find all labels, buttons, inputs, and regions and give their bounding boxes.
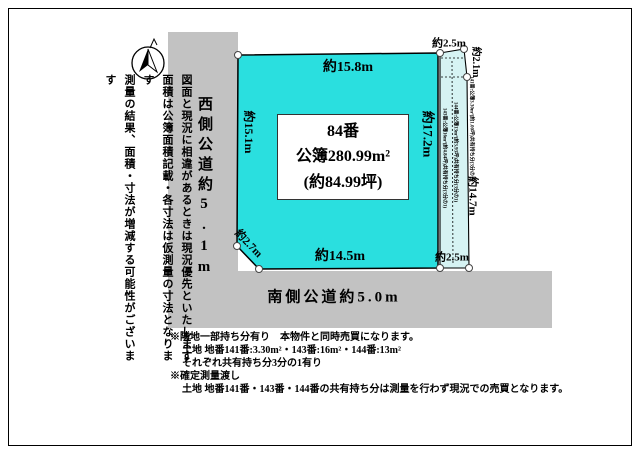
dim-bottom: 約14.5m xyxy=(315,250,365,264)
disclaimer-column-2: 面積は公簿面積記載・各寸法は仮測量の寸法となります xyxy=(138,74,176,370)
strip-dim-right: 約14.7m xyxy=(467,176,478,215)
strip-dim-top: 約2.5m xyxy=(432,39,466,50)
south-road-label: 南側公道約5.0m xyxy=(267,286,400,307)
notes-line-4: ※確定測量渡し xyxy=(170,370,568,383)
vertex-marker xyxy=(437,50,444,57)
lot-info-box: 84番 公簿280.99m² (約84.99坪) xyxy=(277,114,409,200)
parcel-143-label: 143番:公簿16m²(約4.84坪)共有持ち分(3分の1) xyxy=(442,108,449,208)
strip-dim-diagonal: 約2.1m xyxy=(470,47,480,78)
strip-dim-bottom: 約2.5m xyxy=(435,253,469,264)
dim-left: 約15.1m xyxy=(243,111,255,154)
notes-line-2: 土地 地番141番:3.30m²・143番:16m²・144番:13m² xyxy=(170,344,568,357)
vertex-marker xyxy=(466,265,473,272)
west-road-label: 西側公道約5.1m xyxy=(194,96,215,306)
vertex-marker xyxy=(235,52,242,59)
lot-area-registered: 公簿280.99m² xyxy=(296,144,390,170)
disclaimer-column-3: 測量の結果、面積・寸法が増減する可能性がございます xyxy=(100,74,138,370)
vertex-marker xyxy=(256,266,263,273)
notes-line-3: それぞれ共有持ち分3分の1有り xyxy=(170,357,568,370)
notes-line-5: 土地 地番141番・143番・144番の共有持ち分は測量を行わず現況での売買とな… xyxy=(170,383,568,396)
lot-area-tsubo: (約84.99坪) xyxy=(304,170,383,196)
disclaimer-column-1: 図面と現況に相違があるときは現況優先といたします xyxy=(176,74,195,370)
dim-top: 約15.8m xyxy=(323,61,373,75)
dim-right: 約17.2m xyxy=(422,111,435,158)
notes-line-1: ※隣地一部持ち分有り 本物件と同時売買になります。 xyxy=(170,331,568,344)
disclaimer-block: 図面と現況に相違があるときは現況優先といたします 面積は公簿面積記載・各寸法は仮… xyxy=(100,74,195,370)
lot-number: 84番 xyxy=(327,119,359,145)
notes-block: ※隣地一部持ち分有り 本物件と同時売買になります。 土地 地番141番:3.30… xyxy=(170,331,568,396)
parcel-144-label: 144番:公簿13m²(約3.93坪)共有持ち分(3分の1) xyxy=(453,102,460,202)
vertex-marker xyxy=(437,265,444,272)
parcel-141-label: 141番:公簿3.30m²(約1.00坪)共有持ち分(3分の1) xyxy=(469,76,476,180)
